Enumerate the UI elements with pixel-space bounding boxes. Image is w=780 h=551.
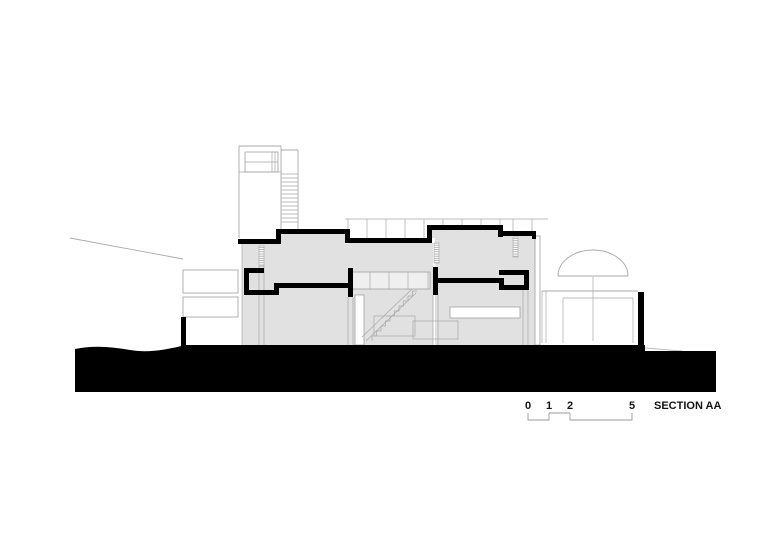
ladder-rungs [281,174,298,222]
scale-label-1: 1 [546,400,552,412]
pavilion-cut-wall [638,292,644,351]
roof-tower [239,146,298,238]
scale-bar: 0 1 2 5 [525,400,635,420]
annex-window-band-lower [183,297,238,317]
left-context-elevation [70,238,238,317]
scale-label-2: 2 [567,400,573,412]
annex-window-band-upper [183,270,238,293]
dome [558,250,628,276]
drawing-canvas: 0 1 2 5 SECTION AA [0,0,780,551]
right-facade-strip [535,236,540,345]
left-fence-post [181,317,186,347]
scale-label-0: 0 [525,400,531,412]
drawing-title: SECTION AA [654,400,721,412]
stair-window-band [351,272,430,289]
door-opening [355,295,364,345]
scale-label-5: 5 [629,400,635,412]
sloped-roof-line [70,238,183,259]
right-pavilion [542,250,682,351]
right-room-niche [450,307,520,318]
ladder-rails [281,146,298,229]
section-drawing: 0 1 2 5 SECTION AA [0,0,780,551]
